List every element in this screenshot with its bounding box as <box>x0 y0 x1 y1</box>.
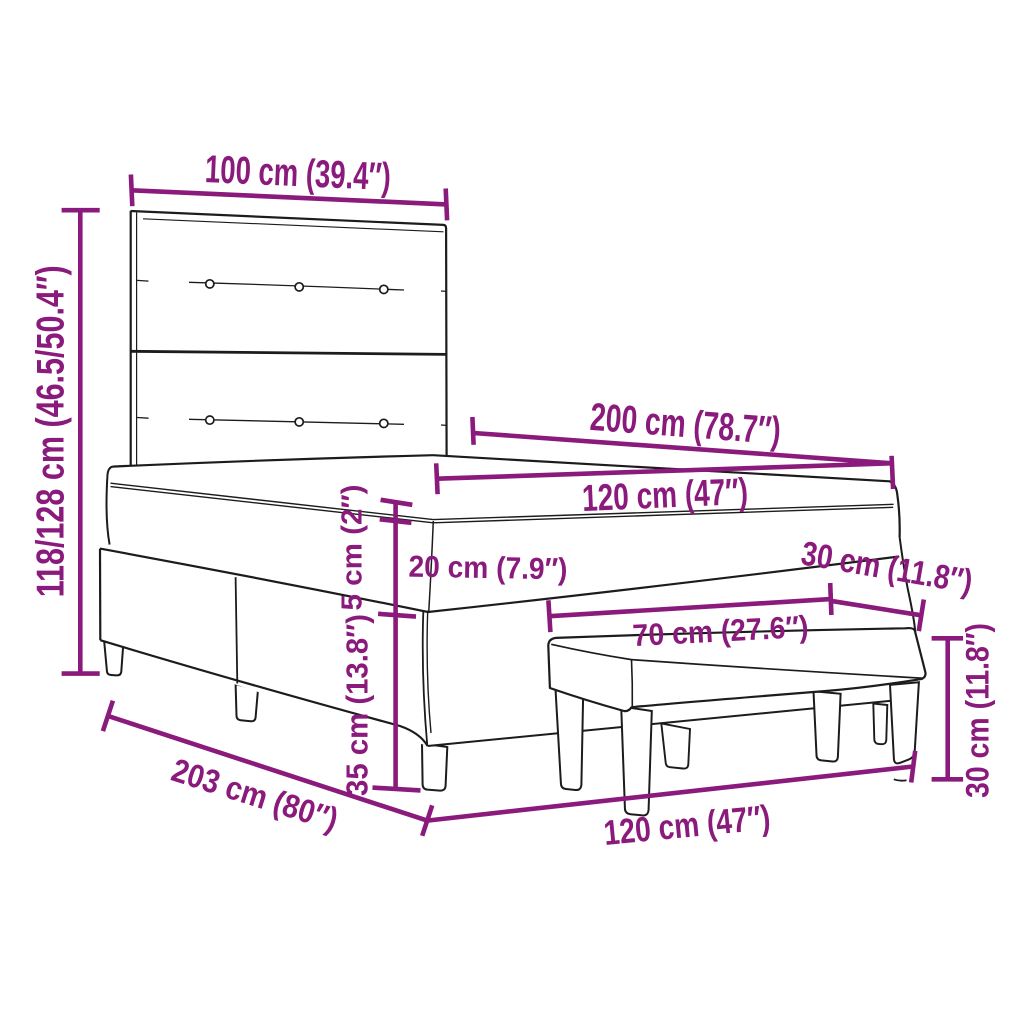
svg-text:120 cm (47″): 120 cm (47″) <box>581 470 749 519</box>
svg-text:20 cm (7.9″): 20 cm (7.9″) <box>408 550 568 587</box>
svg-text:100 cm (39.4″): 100 cm (39.4″) <box>204 148 392 199</box>
svg-text:5 cm (2″): 5 cm (2″) <box>336 485 368 611</box>
svg-text:30 cm (11.8″): 30 cm (11.8″) <box>959 623 995 798</box>
svg-text:35 cm (13.8″): 35 cm (13.8″) <box>339 614 374 796</box>
svg-text:118/128 cm (46.5/50.4″): 118/128 cm (46.5/50.4″) <box>30 265 73 597</box>
